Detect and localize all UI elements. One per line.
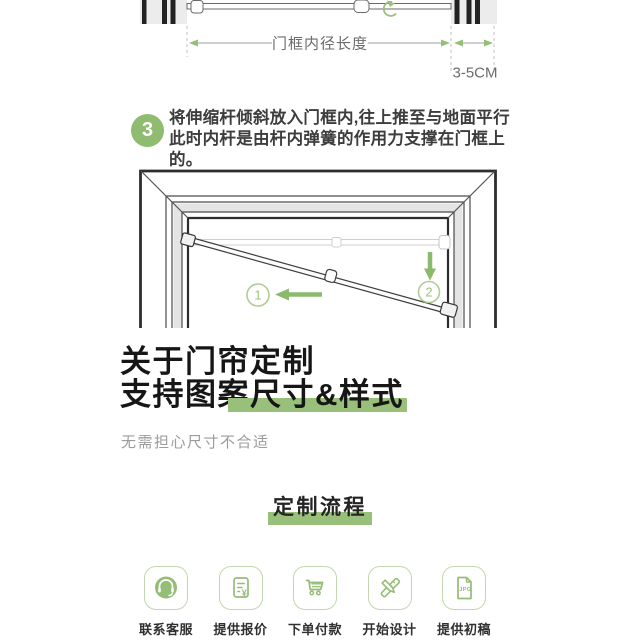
svg-text:JPG: JPG [459, 587, 471, 593]
design-tools-icon [376, 574, 404, 602]
push-down-arrow-icon [424, 252, 436, 281]
gap-dimension: 3-5CM [452, 40, 497, 82]
step-3-line2: 此时内杆是由杆内弹簧的作用力支撑在门框上的。 [169, 129, 514, 171]
flow-label: 联系客服 [139, 619, 193, 638]
door-frame-install-diagram: 1 2 [138, 168, 498, 330]
step-3-text: 将伸缩杆倾斜放入门框内,往上推至与地面平行 此时内杆是由杆内弹簧的作用力支撑在门… [169, 108, 514, 171]
jpg-file-icon: JPG [450, 574, 478, 602]
flow-step-design: 开始设计 [363, 566, 417, 638]
inner-width-label: 门框内径长度 [272, 36, 368, 53]
flow-title-wrap: 定制流程 [0, 491, 640, 525]
rod-measure-diagram: 门框内径长度 3-5CM [138, 0, 500, 98]
left-door-post [140, 0, 187, 24]
title-line-1: 关于门帘定制 [120, 345, 407, 378]
quote-document-icon: ¥ [227, 574, 255, 602]
flow-label: 开始设计 [363, 619, 417, 638]
svg-text:1: 1 [254, 288, 261, 303]
flow-box-quote: ¥ [219, 566, 263, 610]
svg-text:¥: ¥ [241, 588, 246, 598]
flow-label: 提供初稿 [437, 619, 491, 638]
step-3-line1: 将伸缩杆倾斜放入门框内,往上推至与地面平行 [169, 108, 514, 129]
custom-flow-steps: 联系客服 ¥ 提供报价 [139, 566, 491, 638]
custom-section-title: 关于门帘定制 支持图案尺寸&样式 [120, 345, 407, 411]
step-marker-1: 1 [247, 284, 269, 306]
svg-text:2: 2 [425, 285, 432, 300]
rod-final-position [190, 236, 450, 250]
flow-box-pay [293, 566, 337, 610]
tension-rod [187, 0, 451, 13]
shopping-cart-icon [301, 574, 329, 602]
push-left-arrow-icon [275, 289, 322, 301]
gap-label: 3-5CM [452, 65, 497, 82]
flow-box-draft: JPG [442, 566, 486, 610]
step-marker-2: 2 [419, 282, 440, 303]
inner-width-dimension: 门框内径长度 [189, 36, 450, 53]
right-door-post [451, 0, 497, 24]
title-line-2: 支持图案尺寸&样式 [120, 378, 407, 411]
flow-box-contact-service [144, 566, 188, 610]
flow-box-design [368, 566, 412, 610]
flow-step-quote: ¥ 提供报价 [214, 566, 268, 638]
flow-title: 定制流程 [268, 491, 372, 525]
flow-step-contact-service: 联系客服 [139, 566, 193, 638]
flow-step-pay: 下单付款 [288, 566, 342, 638]
customer-service-icon [152, 574, 180, 602]
product-detail-page: 门框内径长度 3-5CM 3 将伸缩杆倾斜放入门框内,往上推至与地面平行 此时内… [0, 0, 640, 640]
flow-label: 提供报价 [214, 619, 268, 638]
custom-section-subtitle: 无需担心尺寸不合适 [121, 431, 270, 452]
title-line-2-highlight: 尺寸&样式 [228, 377, 407, 412]
flow-step-draft: JPG 提供初稿 [437, 566, 491, 638]
step-3-badge: 3 [131, 114, 164, 147]
flow-label: 下单付款 [288, 619, 342, 638]
